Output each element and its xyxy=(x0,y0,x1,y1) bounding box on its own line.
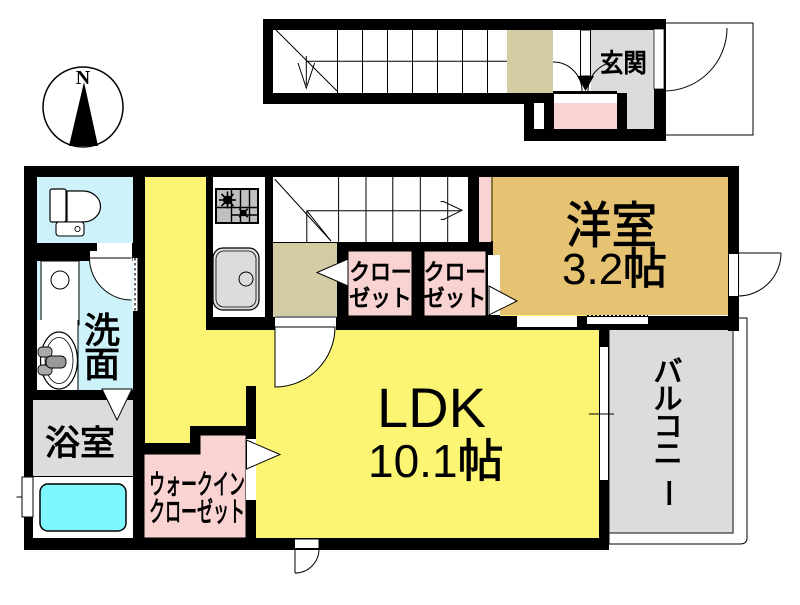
svg-text:10.1: 10.1 xyxy=(368,435,458,487)
svg-text:N: N xyxy=(76,67,91,89)
svg-text:3.2: 3.2 xyxy=(562,245,623,294)
svg-text:LDK: LDK xyxy=(377,376,486,439)
